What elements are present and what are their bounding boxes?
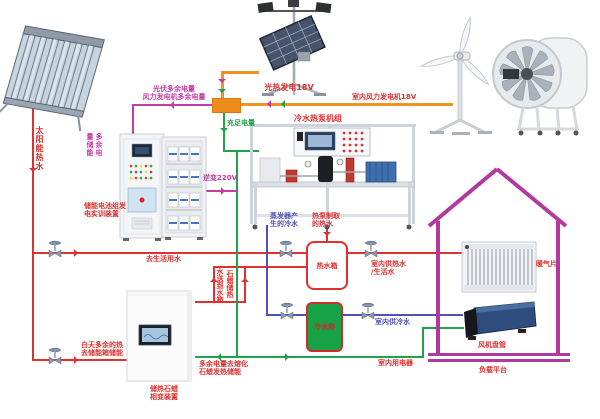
energy-system-diagram: 热水箱 冷水箱 太阳能热水 光热发电18V 室内风力发电机18V 光伏多余电量 … <box>0 0 600 419</box>
valve-icon <box>47 347 63 365</box>
label-indoor-hot-water: 室内供热水 /生活水 <box>371 260 406 276</box>
pipe-solar-down <box>32 108 34 360</box>
wire-inverter <box>203 190 237 192</box>
flow-arrow <box>218 89 226 97</box>
flow-arrow <box>218 79 226 87</box>
house-wall-left <box>436 221 440 355</box>
pipe-evaporator-down <box>266 225 268 316</box>
cold-water-tank: 冷水箱 <box>306 302 343 352</box>
solar-collector-image <box>4 22 109 134</box>
flow-arrow <box>277 100 285 108</box>
flow-arrow <box>220 128 228 136</box>
pipe-paraffin-loop-top <box>213 266 309 268</box>
house-wall-right <box>556 221 560 355</box>
radiator-image <box>460 240 538 294</box>
fan-coil-image <box>460 300 538 342</box>
power-junction-box <box>212 98 241 113</box>
label-fan-coil: 风机盘管 <box>478 341 506 349</box>
wire-house-in <box>422 327 464 329</box>
label-day-surplus-heat: 白天多余的热 去储能箱储能 <box>81 341 123 357</box>
label-heat-pump-unit: 冷水热泵机组 <box>294 115 342 123</box>
label-indoor-cold-water: 室内供冷水 <box>375 318 410 326</box>
flow-arrow <box>221 187 229 195</box>
wire-house-up <box>422 328 424 358</box>
valve-icon <box>360 302 376 320</box>
hot-water-tank-label: 热水箱 <box>317 262 338 270</box>
valve-icon <box>278 240 294 258</box>
valve-icon <box>47 240 63 258</box>
battery-cabinet-image <box>161 135 207 241</box>
label-indoor-appliances: 室内用电器 <box>378 359 413 367</box>
flow-arrow <box>241 274 249 282</box>
cold-water-tank-label: 冷水箱 <box>314 323 335 331</box>
flow-arrow <box>74 356 82 364</box>
label-surplus-pv: 光伏多余电量 <box>136 85 212 93</box>
house-floor <box>428 353 570 356</box>
flow-arrow <box>263 100 271 108</box>
label-paraffin-flow-right: 石蜡储热 <box>226 270 234 298</box>
label-battery-device: 储能电池组发 电实训装置 <box>84 202 126 218</box>
label-evaporator-cold: 蒸发器产 生的冷水 <box>270 212 298 228</box>
label-wind-generation: 室内风力发电机18V <box>352 93 416 101</box>
label-pv-generation: 光热发电18V <box>256 84 322 92</box>
control-cabinet-image <box>119 132 165 242</box>
hot-water-tank: 热水箱 <box>306 241 348 290</box>
label-heat-pump-hot: 热泵制取 的热水 <box>312 212 340 228</box>
wire-bottom <box>195 356 424 358</box>
label-radiator: 暖气片 <box>536 260 557 268</box>
label-paraffin-device: 储热石蜡 相变装置 <box>144 385 184 401</box>
paraffin-device-image <box>125 287 196 384</box>
house-floor <box>428 359 570 362</box>
pipe-paraffin-loop-b <box>244 267 246 303</box>
valve-icon <box>279 302 295 320</box>
flow-arrow <box>74 249 82 257</box>
flow-arrow <box>285 353 293 361</box>
label-paraffin-flow-left: 水送到水箱 <box>216 268 224 303</box>
flow-arrow <box>166 101 174 109</box>
label-to-domestic-water: 去生活用水 <box>146 255 181 263</box>
valve-icon <box>363 240 379 258</box>
pipe-coldtank-to-fancoil <box>339 314 463 316</box>
label-solar-hot-water: 太阳能热水 <box>35 126 43 186</box>
label-load-platform: 负载平台 <box>479 366 507 374</box>
label-melt-paraffin: 多余电量去熔化 石蜡发热储能 <box>199 360 248 376</box>
wind-source-fan-image <box>477 30 595 136</box>
label-sufficient-power: 充足电量 <box>227 119 255 127</box>
label-surplus-wind: 风力发电机多余电量 <box>136 93 212 101</box>
label-surplus-storage: 多余电量储能 <box>85 133 103 161</box>
label-inverter: 逆变220V <box>203 174 237 182</box>
pipe-paraffin-loop-a <box>213 267 215 303</box>
